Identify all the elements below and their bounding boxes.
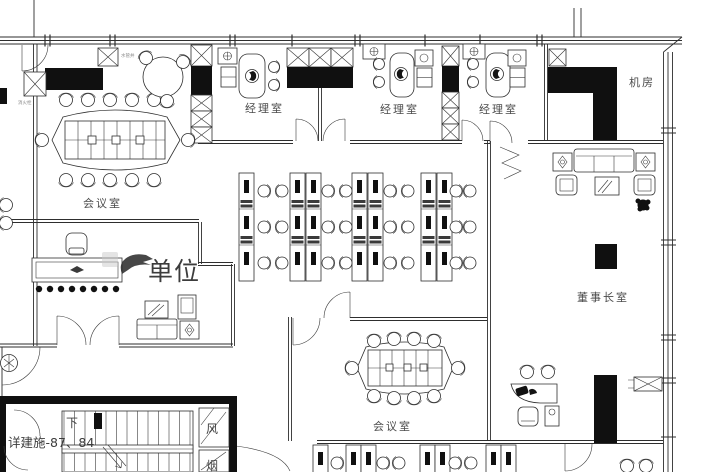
shaft-note-top: 水管井: [121, 52, 135, 59]
svg-text:烟: 烟: [206, 459, 219, 472]
plant: [636, 199, 651, 212]
floorplan-canvas: 会议室 水管井 消火栓 经理室 经理室 经理室 机房: [0, 0, 710, 472]
svg-text:风: 风: [206, 422, 219, 436]
shaft-note-left: 消火栓: [18, 99, 32, 106]
room-label-meeting-bottom: 会议室: [373, 419, 412, 433]
shaft-box-top: [98, 48, 118, 66]
machine-room-wall: [548, 67, 617, 140]
shaft-box-left: [24, 72, 46, 96]
meeting-room-bottom: 会议室: [345, 332, 465, 433]
stairwell: 下 详建施-87、84 风 烟: [0, 396, 237, 472]
folding-door: [500, 147, 521, 179]
air-shaft: 风: [199, 408, 229, 447]
bottom-workstations: [313, 445, 654, 472]
smoke-shaft: 烟: [199, 450, 229, 472]
open-office-workstations: [239, 173, 476, 281]
stair-note: 详建施-87、84: [8, 435, 94, 450]
manager-office-2: 经理室: [363, 44, 433, 116]
conference-room-left: 会议室: [35, 93, 195, 210]
manager-office-3: 经理室: [463, 44, 526, 116]
floorplan-drawing: 会议室 水管井 消火栓 经理室 经理室 经理室 机房: [0, 0, 710, 472]
chairman-desk: [511, 365, 559, 426]
room-label-chairman: 董事长室: [577, 290, 629, 304]
stair-down-label: 下: [66, 416, 79, 430]
reception-stools: [36, 286, 119, 292]
chairman-office: 董事长室: [511, 149, 662, 426]
watermark-text: 单位: [148, 257, 200, 286]
manager-office-1: 经理室: [218, 48, 284, 115]
room-label-meeting-left: 会议室: [83, 196, 122, 210]
left-edge-furniture: [0, 198, 17, 372]
window-box: [628, 377, 662, 391]
room-label-manager-1: 经理室: [245, 101, 284, 115]
room-label-manager-2: 经理室: [380, 102, 419, 116]
room-label-manager-3: 经理室: [479, 102, 518, 116]
room-label-machine-room: 机房: [629, 75, 655, 89]
